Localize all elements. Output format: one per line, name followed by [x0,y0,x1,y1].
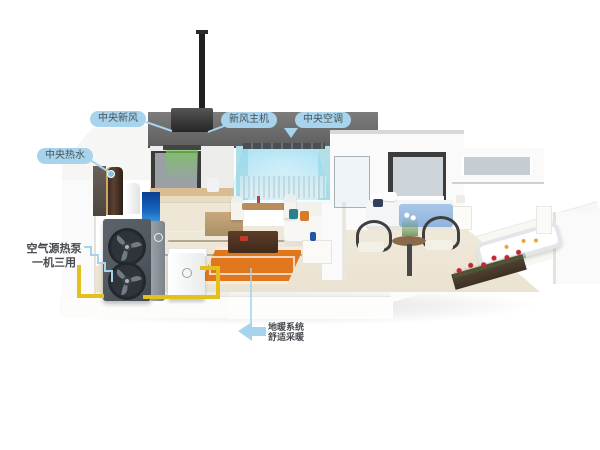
patio-chair-right-cushion [425,240,453,250]
label-hot-water: 中央热水 [37,148,93,164]
label-heat-pump: 空气源热泵 一机三用 [8,242,100,270]
bed-pillow [383,192,397,201]
label-heat-pump-line1: 空气源热泵 [8,242,100,256]
patio-chair-left-cushion [358,242,384,252]
label-fresh-air: 中央新风 [90,111,146,127]
heat-pump-logo [154,233,163,242]
hot-water-tank [106,167,123,215]
exhaust-pipe [199,32,205,116]
kitchen-upper-cabinets [150,188,234,196]
side-table [302,240,332,264]
sofa-pillow-orange [300,211,309,221]
indoor-unit-logo [182,268,192,278]
bath-pedestal [536,206,552,234]
water-softener [126,183,140,214]
label-floor-heating: 地暖系统 舒适采暖 [268,322,314,342]
fresh-air-green-glow [166,150,198,182]
glass-partition [334,156,370,208]
heat-pump-fan-bottom [107,261,147,301]
ac-air-curtain [228,149,332,203]
nightstand-lamp [456,195,465,203]
ac-ceiling-vent [243,143,325,149]
doorway-opening [93,166,106,216]
bed-dark-cushion [373,199,383,207]
exhaust-pipe-cap [196,30,208,34]
coffee-table-decor [240,236,248,241]
front-fascia-mid [228,296,393,319]
right-high-window [462,157,532,175]
coffee-table [228,231,278,253]
patio-table-pedestal [407,244,412,276]
aquarium [142,192,160,222]
patio-flowers [402,210,418,236]
label-fresh-air-unit: 新风主机 [221,112,277,128]
house-cutaway-scene: 中央新风 新风主机 中央空调 中央热水 空气源热泵 一机三用 地暖系统 舒适采暖 [0,0,600,450]
sofa-pillow-teal [289,209,298,219]
label-floor-heating-line2: 舒适采暖 [268,332,314,342]
dining-table [242,203,286,210]
label-central-ac: 中央空调 [295,112,351,128]
hrv-fresh-air-unit [171,108,213,132]
label-floor-heating-line1: 地暖系统 [268,322,314,332]
side-table-vase [310,232,316,241]
countertop-appliance [207,178,219,192]
right-cutaway-wall [553,212,600,284]
label-heat-pump-line2: 一机三用 [8,256,100,270]
